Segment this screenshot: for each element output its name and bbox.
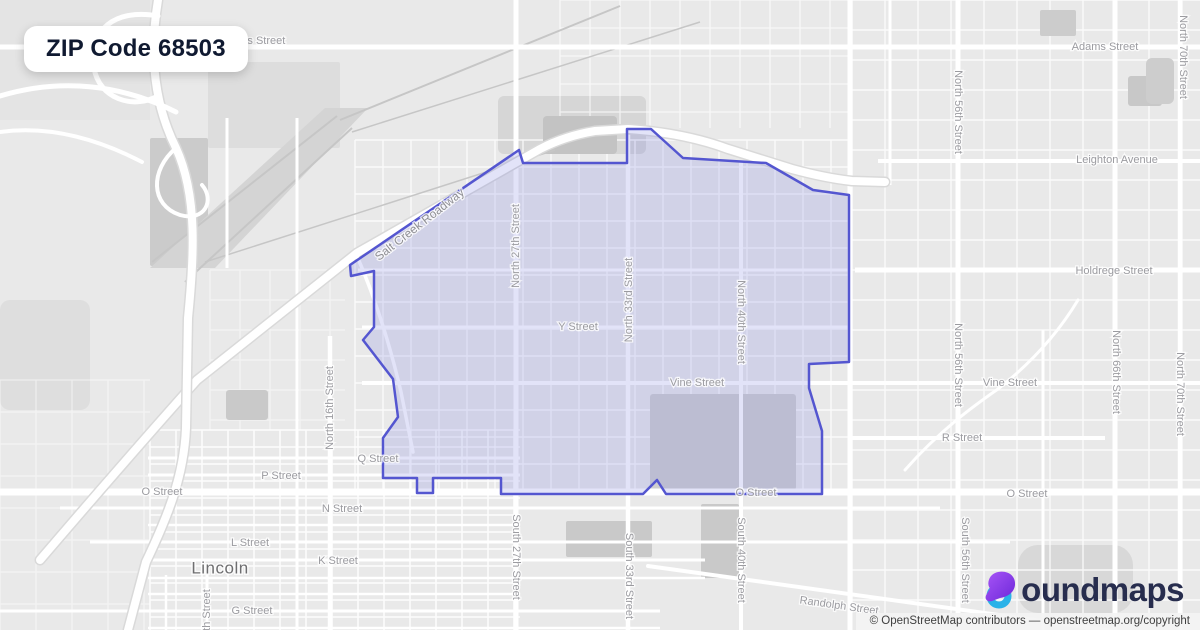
street-label: Vine Street — [670, 377, 724, 389]
map-area-patch — [1146, 58, 1174, 104]
street-label: North 40th Street — [735, 280, 747, 364]
street-label: North 66th Street — [1110, 330, 1122, 414]
street-label: North 16th Street — [324, 366, 336, 450]
map-area-patch — [566, 521, 652, 557]
map-viewport[interactable]: Adams StreetAdams StreetLeighton AvenueH… — [0, 0, 1200, 630]
street-label: th Street — [201, 589, 213, 630]
zip-code-badge: ZIP Code 68503 — [24, 26, 248, 72]
street-label: N Street — [322, 503, 362, 515]
street-label: Adams Street — [1072, 41, 1139, 53]
map-area-patch — [0, 300, 90, 410]
zip-code-title: ZIP Code 68503 — [46, 35, 226, 62]
attribution-link[interactable]: © OpenStreetMap contributors — openstree… — [870, 615, 1190, 627]
street-label: Leighton Avenue — [1076, 154, 1158, 166]
city-label: Lincoln — [191, 558, 248, 577]
map-area-patch — [1040, 10, 1076, 36]
map-area-patch — [226, 390, 268, 420]
street-label: North 70th Street — [1177, 15, 1189, 99]
street-label: L Street — [231, 537, 269, 549]
street-label: Y Street — [558, 321, 598, 333]
street-label: North 70th Street — [1174, 352, 1186, 436]
street-label: Vine Street — [983, 377, 1037, 389]
street-label: North 56th Street — [952, 70, 964, 154]
street-label: O Street — [736, 487, 777, 499]
street-label: North 33rd Street — [623, 258, 635, 342]
street-label: O Street — [142, 486, 183, 498]
street-label: Q Street — [358, 453, 399, 465]
boundmaps-logo: oundmaps — [982, 570, 1184, 610]
map-canvas[interactable]: Adams StreetAdams StreetLeighton AvenueH… — [0, 0, 1200, 630]
street-label: Holdrege Street — [1075, 265, 1152, 277]
street-label: South 33rd Street — [623, 533, 635, 619]
street-label: O Street — [1007, 488, 1048, 500]
street-label: South 56th Street — [959, 517, 971, 603]
street-label: G Street — [232, 605, 273, 617]
street-label: North 56th Street — [952, 323, 964, 407]
street-label: South 40th Street — [735, 517, 747, 603]
street-label: R Street — [942, 432, 982, 444]
attribution-bar: © OpenStreetMap contributors — openstree… — [856, 613, 1200, 630]
street-label: P Street — [261, 470, 301, 482]
street-label: K Street — [318, 555, 358, 567]
boundmaps-wordmark: oundmaps — [1021, 571, 1184, 609]
street-label: North 27th Street — [510, 204, 522, 288]
boundmaps-b-icon — [982, 570, 1020, 610]
street-label: South 27th Street — [510, 514, 522, 600]
